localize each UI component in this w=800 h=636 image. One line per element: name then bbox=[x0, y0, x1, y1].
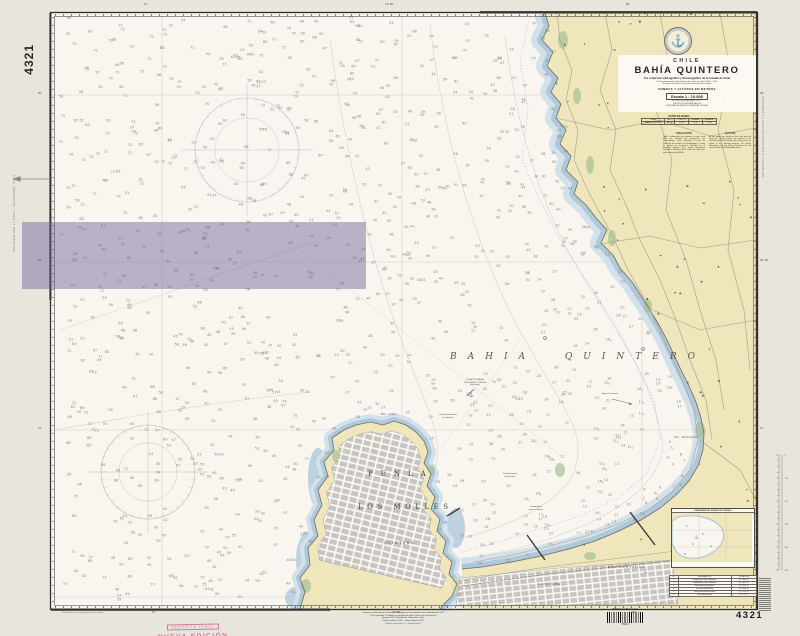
svg-text:72: 72 bbox=[311, 74, 315, 78]
svg-text:51: 51 bbox=[454, 183, 458, 187]
svg-text:34: 34 bbox=[586, 226, 591, 230]
svg-text:54: 54 bbox=[149, 452, 154, 456]
svg-text:24: 24 bbox=[544, 397, 549, 401]
svg-text:53: 53 bbox=[255, 510, 259, 514]
svg-text:72: 72 bbox=[79, 119, 83, 123]
svg-text:35: 35 bbox=[305, 390, 309, 394]
svg-text:53: 53 bbox=[419, 154, 423, 158]
svg-text:34: 34 bbox=[407, 354, 412, 358]
svg-text:51: 51 bbox=[359, 40, 363, 44]
svg-text:28: 28 bbox=[580, 253, 584, 257]
svg-text:62: 62 bbox=[81, 358, 85, 362]
svg-text:16: 16 bbox=[677, 400, 681, 404]
svg-text:56: 56 bbox=[84, 66, 88, 70]
svg-text:46: 46 bbox=[242, 327, 246, 331]
svg-text:44: 44 bbox=[366, 297, 371, 301]
svg-text:13: 13 bbox=[615, 462, 619, 466]
svg-text:22: 22 bbox=[610, 285, 614, 289]
svg-text:53: 53 bbox=[511, 76, 515, 80]
svg-text:41: 41 bbox=[276, 390, 280, 394]
svg-text:43: 43 bbox=[382, 211, 386, 215]
svg-text:53: 53 bbox=[353, 92, 357, 96]
svg-text:45: 45 bbox=[393, 110, 397, 114]
svg-text:27: 27 bbox=[597, 301, 601, 305]
svg-text:63: 63 bbox=[215, 592, 219, 596]
svg-text:58: 58 bbox=[118, 321, 122, 325]
svg-text:66: 66 bbox=[77, 483, 81, 487]
svg-text:56: 56 bbox=[329, 139, 333, 143]
svg-text:50: 50 bbox=[293, 462, 297, 466]
svg-text:55: 55 bbox=[509, 47, 513, 51]
svg-text:52: 52 bbox=[262, 571, 266, 575]
svg-text:38: 38 bbox=[557, 129, 561, 133]
svg-text:26: 26 bbox=[443, 520, 447, 524]
svg-text:59: 59 bbox=[248, 464, 252, 468]
svg-text:48: 48 bbox=[208, 579, 212, 583]
svg-text:34: 34 bbox=[417, 278, 422, 282]
svg-text:72: 72 bbox=[116, 195, 120, 199]
svg-text:70: 70 bbox=[177, 80, 181, 84]
svg-text:52: 52 bbox=[200, 576, 204, 580]
svg-text:24: 24 bbox=[585, 341, 590, 345]
svg-text:46: 46 bbox=[345, 311, 349, 315]
svg-text:23: 23 bbox=[618, 270, 622, 274]
svg-text:54: 54 bbox=[181, 19, 186, 23]
svg-text:72: 72 bbox=[144, 428, 148, 432]
svg-text:29: 29 bbox=[490, 503, 494, 507]
svg-text:62: 62 bbox=[119, 85, 123, 89]
svg-text:55: 55 bbox=[219, 57, 223, 61]
svg-text:70: 70 bbox=[287, 26, 291, 30]
svg-text:15: 15 bbox=[581, 499, 585, 503]
svg-text:32: 32 bbox=[434, 214, 438, 218]
svg-text:36: 36 bbox=[582, 225, 586, 229]
svg-text:38: 38 bbox=[415, 185, 419, 189]
svg-text:63: 63 bbox=[106, 119, 110, 123]
svg-text:72: 72 bbox=[71, 184, 75, 188]
svg-text:72: 72 bbox=[163, 33, 167, 37]
svg-text:68: 68 bbox=[357, 115, 361, 119]
svg-text:53: 53 bbox=[201, 166, 205, 170]
svg-text:64: 64 bbox=[380, 86, 385, 90]
svg-text:37: 37 bbox=[543, 194, 547, 198]
map-label: LOS MOLLES bbox=[358, 503, 453, 511]
svg-text:72: 72 bbox=[193, 160, 197, 164]
svg-text:37: 37 bbox=[348, 361, 352, 365]
svg-text:52: 52 bbox=[407, 251, 411, 255]
svg-text:32: 32 bbox=[553, 308, 557, 312]
svg-text:23: 23 bbox=[524, 522, 528, 526]
svg-text:59: 59 bbox=[280, 211, 284, 215]
svg-text:57: 57 bbox=[272, 391, 276, 395]
svg-text:30: 30 bbox=[574, 317, 578, 321]
svg-text:11: 11 bbox=[585, 529, 589, 533]
svg-text:36: 36 bbox=[593, 245, 597, 249]
svg-text:29: 29 bbox=[620, 306, 624, 310]
svg-text:61: 61 bbox=[319, 32, 323, 36]
svg-text:67: 67 bbox=[355, 59, 359, 63]
svg-text:26: 26 bbox=[497, 434, 501, 438]
svg-text:19: 19 bbox=[538, 425, 542, 429]
svg-text:65: 65 bbox=[120, 516, 124, 520]
svg-text:72: 72 bbox=[120, 28, 124, 32]
svg-text:70: 70 bbox=[169, 77, 173, 81]
svg-text:5: 5 bbox=[679, 483, 681, 487]
svg-text:53: 53 bbox=[177, 85, 181, 89]
svg-text:51: 51 bbox=[509, 112, 513, 116]
svg-text:50: 50 bbox=[278, 106, 282, 110]
bottom-left-note: Válida hasta su reemplazo por nueva edic… bbox=[62, 612, 103, 614]
svg-text:32: 32 bbox=[406, 360, 410, 364]
svg-text:72: 72 bbox=[81, 158, 85, 162]
anchorage-inset-diagram: DIAGRAMA DE ZONAS DE FONDEO 12 34 5 ⚓ bbox=[671, 508, 755, 568]
svg-text:48: 48 bbox=[426, 215, 430, 219]
svg-text:51: 51 bbox=[516, 155, 520, 159]
svg-text:39: 39 bbox=[413, 139, 417, 143]
water-note: Cañería submarina(en desuso) bbox=[426, 414, 470, 419]
svg-text:39: 39 bbox=[231, 332, 235, 336]
svg-text:37: 37 bbox=[378, 184, 382, 188]
svg-text:25: 25 bbox=[429, 437, 433, 441]
svg-text:57: 57 bbox=[89, 555, 93, 559]
svg-text:30: 30 bbox=[496, 264, 500, 268]
svg-text:33: 33 bbox=[408, 257, 412, 261]
svg-text:53: 53 bbox=[80, 298, 84, 302]
svg-text:57: 57 bbox=[212, 193, 216, 197]
svg-text:8: 8 bbox=[680, 453, 682, 457]
svg-text:46: 46 bbox=[343, 306, 347, 310]
svg-text:13: 13 bbox=[594, 436, 598, 440]
purple-highlight-overlay bbox=[22, 222, 366, 289]
svg-text:72: 72 bbox=[169, 23, 173, 27]
svg-text:29: 29 bbox=[573, 344, 577, 348]
svg-text:52: 52 bbox=[219, 158, 223, 162]
publisher-imprint: Impreso y publicado por el Servicio Hidr… bbox=[336, 612, 470, 626]
svg-text:52: 52 bbox=[155, 160, 159, 164]
svg-text:44: 44 bbox=[219, 528, 224, 532]
svg-text:40: 40 bbox=[408, 110, 412, 114]
svg-text:39: 39 bbox=[431, 382, 435, 386]
svg-text:70: 70 bbox=[150, 583, 154, 587]
svg-text:58: 58 bbox=[112, 37, 116, 41]
svg-text:72: 72 bbox=[191, 141, 195, 145]
svg-text:54: 54 bbox=[429, 34, 434, 38]
svg-text:51: 51 bbox=[125, 191, 129, 195]
svg-text:22: 22 bbox=[515, 532, 519, 536]
svg-text:72: 72 bbox=[286, 108, 290, 112]
svg-text:43: 43 bbox=[433, 270, 437, 274]
svg-text:54: 54 bbox=[210, 443, 215, 447]
svg-text:46: 46 bbox=[130, 476, 134, 480]
svg-text:44: 44 bbox=[391, 330, 396, 334]
svg-text:32: 32 bbox=[397, 273, 401, 277]
water-note-line: de prácticos bbox=[490, 476, 530, 479]
svg-text:39: 39 bbox=[322, 417, 326, 421]
svg-text:51: 51 bbox=[247, 341, 251, 345]
svg-text:53: 53 bbox=[193, 461, 197, 465]
svg-text:21: 21 bbox=[543, 440, 547, 444]
svg-text:60: 60 bbox=[68, 415, 72, 419]
svg-text:21: 21 bbox=[623, 314, 627, 318]
svg-text:61: 61 bbox=[207, 193, 211, 197]
svg-text:25: 25 bbox=[457, 447, 461, 451]
svg-text:72: 72 bbox=[161, 160, 165, 164]
svg-text:41: 41 bbox=[568, 186, 572, 190]
svg-text:72: 72 bbox=[126, 299, 130, 303]
svg-text:48: 48 bbox=[251, 83, 255, 87]
svg-text:22: 22 bbox=[456, 593, 460, 597]
svg-text:45: 45 bbox=[431, 73, 435, 77]
svg-text:63: 63 bbox=[198, 468, 202, 472]
svg-text:41: 41 bbox=[542, 174, 546, 178]
svg-text:61: 61 bbox=[99, 85, 103, 89]
svg-text:43: 43 bbox=[227, 551, 231, 555]
svg-text:53: 53 bbox=[167, 443, 171, 447]
svg-text:59: 59 bbox=[443, 77, 447, 81]
svg-text:68: 68 bbox=[138, 216, 142, 220]
svg-text:36: 36 bbox=[551, 298, 555, 302]
svg-text:68: 68 bbox=[157, 73, 161, 77]
svg-text:61: 61 bbox=[336, 134, 340, 138]
svg-text:44: 44 bbox=[163, 507, 168, 511]
svg-text:42: 42 bbox=[292, 343, 296, 347]
svg-text:31: 31 bbox=[502, 385, 506, 389]
svg-text:72: 72 bbox=[128, 143, 132, 147]
svg-text:45: 45 bbox=[217, 551, 221, 555]
svg-text:53: 53 bbox=[421, 199, 425, 203]
svg-text:26: 26 bbox=[554, 365, 558, 369]
svg-text:54: 54 bbox=[124, 541, 129, 545]
svg-text:40: 40 bbox=[552, 160, 556, 164]
svg-text:72: 72 bbox=[168, 162, 172, 166]
svg-text:36: 36 bbox=[462, 183, 466, 187]
svg-text:43: 43 bbox=[263, 213, 267, 217]
svg-text:41: 41 bbox=[194, 585, 198, 589]
barcode-number: 75244 bbox=[606, 623, 644, 626]
svg-text:40: 40 bbox=[376, 292, 380, 296]
svg-text:10: 10 bbox=[627, 502, 631, 506]
svg-text:18: 18 bbox=[532, 473, 536, 477]
svg-text:63: 63 bbox=[185, 417, 189, 421]
svg-text:55: 55 bbox=[108, 408, 112, 412]
svg-text:21: 21 bbox=[515, 397, 519, 401]
svg-text:58: 58 bbox=[133, 328, 137, 332]
svg-text:14: 14 bbox=[621, 443, 626, 447]
svg-text:51: 51 bbox=[139, 178, 143, 182]
svg-text:52: 52 bbox=[246, 322, 250, 326]
svg-text:67: 67 bbox=[176, 463, 180, 467]
svg-text:43: 43 bbox=[236, 513, 240, 517]
svg-text:11: 11 bbox=[583, 504, 587, 508]
svg-text:64: 64 bbox=[329, 129, 334, 133]
svg-text:37: 37 bbox=[541, 289, 545, 293]
svg-text:52: 52 bbox=[240, 48, 244, 52]
svg-text:33: 33 bbox=[373, 370, 377, 374]
svg-text:32: 32 bbox=[355, 297, 359, 301]
svg-text:57: 57 bbox=[532, 57, 536, 61]
longitude-label: 29' bbox=[626, 3, 630, 6]
svg-text:72: 72 bbox=[261, 104, 265, 108]
svg-text:72: 72 bbox=[88, 422, 92, 426]
svg-text:53: 53 bbox=[497, 136, 501, 140]
svg-text:70: 70 bbox=[205, 102, 209, 106]
svg-text:14: 14 bbox=[597, 518, 602, 522]
svg-text:45: 45 bbox=[135, 352, 139, 356]
svg-text:45: 45 bbox=[563, 125, 567, 129]
svg-text:11: 11 bbox=[615, 504, 619, 508]
svg-text:64: 64 bbox=[156, 470, 161, 474]
svg-text:57: 57 bbox=[375, 59, 379, 63]
svg-text:72: 72 bbox=[111, 170, 115, 174]
svg-text:61: 61 bbox=[546, 58, 550, 62]
svg-text:22: 22 bbox=[585, 307, 589, 311]
svg-text:60: 60 bbox=[207, 559, 211, 563]
svg-text:50: 50 bbox=[207, 475, 211, 479]
longitude-label: 31' bbox=[152, 611, 156, 614]
svg-text:21: 21 bbox=[606, 399, 610, 403]
svg-text:42: 42 bbox=[404, 225, 408, 229]
svg-text:48: 48 bbox=[368, 334, 372, 338]
svg-text:70: 70 bbox=[74, 495, 78, 499]
svg-text:51: 51 bbox=[305, 457, 309, 461]
svg-text:67: 67 bbox=[192, 382, 196, 386]
svg-text:49: 49 bbox=[301, 32, 305, 36]
svg-text:35: 35 bbox=[465, 163, 469, 167]
svg-text:37: 37 bbox=[560, 186, 564, 190]
svg-text:58: 58 bbox=[117, 597, 121, 601]
svg-text:58: 58 bbox=[159, 391, 163, 395]
svg-text:72: 72 bbox=[140, 182, 144, 186]
svg-text:39: 39 bbox=[204, 506, 208, 510]
svg-text:23: 23 bbox=[458, 389, 462, 393]
svg-text:62: 62 bbox=[218, 88, 222, 92]
svg-text:37: 37 bbox=[530, 159, 534, 163]
svg-text:26: 26 bbox=[523, 433, 527, 437]
svg-text:25: 25 bbox=[506, 559, 510, 563]
svg-text:56: 56 bbox=[218, 371, 222, 375]
svg-text:54: 54 bbox=[190, 457, 195, 461]
svg-text:37: 37 bbox=[273, 543, 277, 547]
svg-text:53: 53 bbox=[193, 305, 197, 309]
svg-text:39: 39 bbox=[493, 59, 497, 63]
svg-text:63: 63 bbox=[72, 342, 76, 346]
svg-text:55: 55 bbox=[434, 125, 438, 129]
svg-text:40: 40 bbox=[348, 137, 352, 141]
svg-text:50: 50 bbox=[200, 463, 204, 467]
svg-text:72: 72 bbox=[92, 192, 96, 196]
anchor-icon: ⚓ bbox=[694, 534, 699, 539]
svg-text:45: 45 bbox=[207, 333, 211, 337]
svg-text:47: 47 bbox=[323, 47, 327, 51]
svg-text:54: 54 bbox=[167, 557, 172, 561]
svg-text:65: 65 bbox=[238, 57, 242, 61]
svg-text:52: 52 bbox=[258, 519, 262, 523]
note-title: PRECAUCIÓN bbox=[663, 133, 705, 135]
svg-text:21: 21 bbox=[491, 457, 495, 461]
svg-text:29: 29 bbox=[478, 561, 482, 565]
svg-text:41: 41 bbox=[393, 205, 397, 209]
svg-text:64: 64 bbox=[122, 386, 127, 390]
svg-text:69: 69 bbox=[158, 127, 162, 131]
svg-text:26: 26 bbox=[505, 282, 509, 286]
svg-text:19: 19 bbox=[468, 457, 472, 461]
svg-text:62: 62 bbox=[82, 574, 86, 578]
svg-text:56: 56 bbox=[75, 199, 79, 203]
svg-text:63: 63 bbox=[88, 30, 92, 34]
right-edge-barcode bbox=[759, 577, 771, 611]
svg-text:63: 63 bbox=[85, 123, 89, 127]
svg-text:58: 58 bbox=[214, 497, 218, 501]
svg-text:66: 66 bbox=[115, 63, 119, 67]
svg-text:60: 60 bbox=[270, 21, 274, 25]
svg-text:34: 34 bbox=[290, 425, 295, 429]
svg-text:72: 72 bbox=[100, 289, 104, 293]
svg-text:58: 58 bbox=[352, 116, 356, 120]
svg-text:42: 42 bbox=[259, 479, 263, 483]
svg-text:52: 52 bbox=[210, 137, 214, 141]
svg-text:19: 19 bbox=[586, 385, 590, 389]
svg-text:53: 53 bbox=[541, 37, 545, 41]
svg-text:53: 53 bbox=[255, 447, 259, 451]
svg-text:17: 17 bbox=[588, 380, 592, 384]
svg-text:25: 25 bbox=[473, 401, 477, 405]
svg-text:58: 58 bbox=[252, 199, 256, 203]
svg-text:72: 72 bbox=[96, 152, 100, 156]
water-note: Zona de esperade prácticos bbox=[490, 473, 530, 478]
svg-text:6: 6 bbox=[645, 501, 647, 505]
svg-text:26: 26 bbox=[483, 499, 487, 503]
svg-text:51: 51 bbox=[211, 419, 215, 423]
svg-text:45: 45 bbox=[316, 475, 320, 479]
svg-text:35: 35 bbox=[551, 151, 555, 155]
chart-number-top-left: 4321 bbox=[22, 44, 36, 75]
svg-text:43: 43 bbox=[551, 50, 555, 54]
svg-text:17: 17 bbox=[524, 515, 528, 519]
svg-text:12: 12 bbox=[608, 493, 612, 497]
svg-text:53: 53 bbox=[349, 15, 353, 19]
svg-text:33: 33 bbox=[346, 353, 350, 357]
svg-text:52: 52 bbox=[188, 208, 192, 212]
svg-text:54: 54 bbox=[314, 19, 319, 23]
svg-text:50: 50 bbox=[394, 39, 398, 43]
svg-text:68: 68 bbox=[244, 145, 248, 149]
svg-text:30: 30 bbox=[534, 175, 538, 179]
svg-text:43: 43 bbox=[490, 83, 494, 87]
svg-text:16: 16 bbox=[576, 471, 580, 475]
svg-text:46: 46 bbox=[111, 556, 115, 560]
nautical-chart-page: 2563115563839255544567267343019595639317… bbox=[0, 0, 800, 636]
svg-text:33: 33 bbox=[390, 322, 394, 326]
svg-text:29: 29 bbox=[469, 443, 473, 447]
svg-text:30: 30 bbox=[509, 204, 513, 208]
svg-text:60: 60 bbox=[300, 40, 304, 44]
stamp-line2: NUEVA EDICIÓN bbox=[122, 632, 264, 636]
svg-text:50: 50 bbox=[283, 477, 287, 481]
svg-text:37: 37 bbox=[432, 246, 436, 250]
svg-text:64: 64 bbox=[300, 19, 305, 23]
svg-text:40: 40 bbox=[380, 353, 384, 357]
svg-text:54: 54 bbox=[409, 224, 414, 228]
svg-text:60: 60 bbox=[380, 40, 384, 44]
svg-text:71: 71 bbox=[124, 467, 128, 471]
svg-text:65: 65 bbox=[350, 72, 354, 76]
svg-text:72: 72 bbox=[118, 23, 122, 27]
svg-text:72: 72 bbox=[66, 186, 70, 190]
svg-text:23: 23 bbox=[526, 369, 530, 373]
svg-text:29: 29 bbox=[460, 479, 464, 483]
new-edition-stamp: DEPÓSITO LEGAL NUEVA EDICIÓN bbox=[122, 614, 264, 636]
svg-text:28: 28 bbox=[489, 542, 493, 546]
